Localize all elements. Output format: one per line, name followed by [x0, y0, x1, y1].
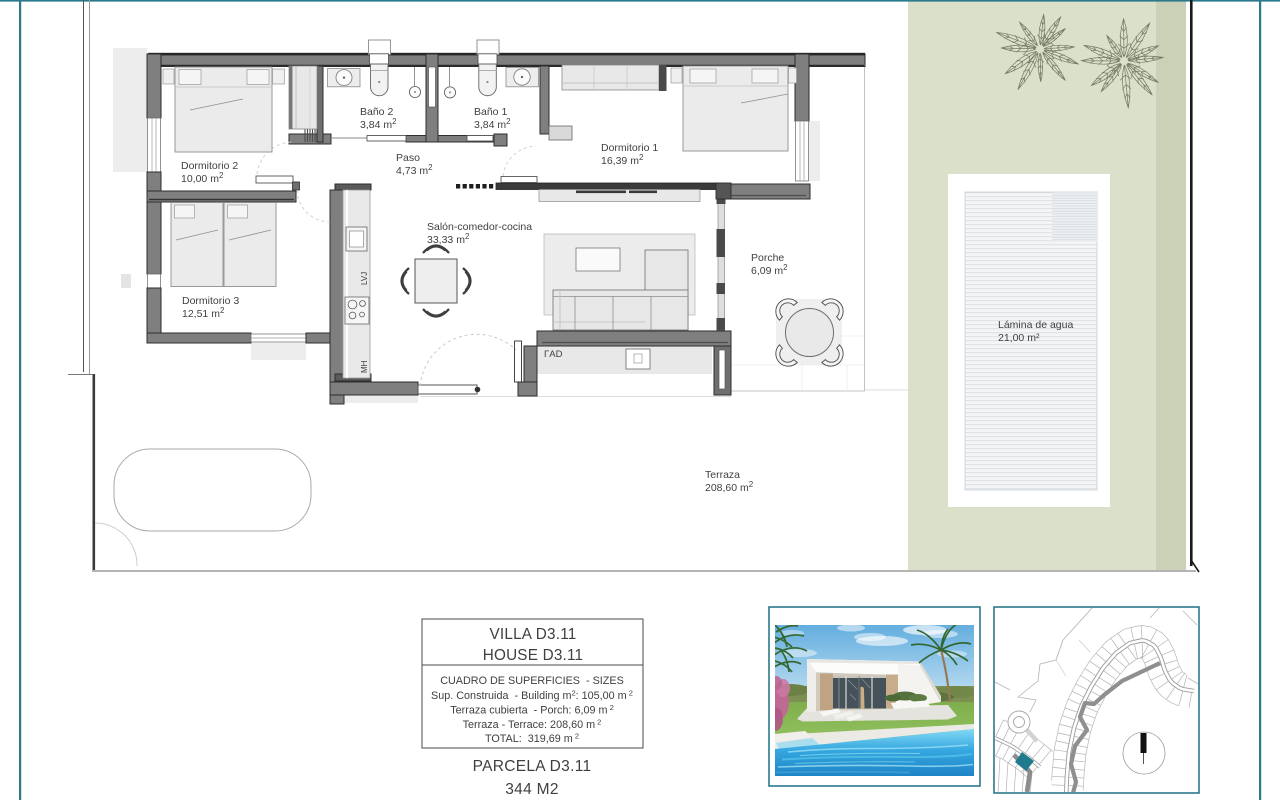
svg-text:VILLA D3.11: VILLA D3.11	[490, 626, 577, 643]
svg-text:MH: MH	[360, 360, 369, 373]
svg-text:3,84 m2: 3,84 m2	[360, 117, 397, 131]
svg-text:Paso: Paso	[396, 152, 420, 164]
svg-text:208,60 m2: 208,60 m2	[705, 480, 754, 494]
svg-text:HOUSE D3.11: HOUSE D3.11	[483, 647, 584, 664]
svg-text:Porche: Porche	[751, 252, 784, 264]
svg-text:Dormitorio 3: Dormitorio 3	[182, 295, 239, 307]
svg-text:Dormitorio 1: Dormitorio 1	[601, 142, 658, 154]
svg-text:Terraza cubierta - Porch: 6,0: Terraza cubierta - Porch: 6,09 m 2	[450, 703, 614, 717]
svg-text:16,39 m2: 16,39 m2	[601, 153, 644, 167]
svg-text:PARCELA D3.11: PARCELA D3.11	[473, 758, 592, 775]
svg-text:Dormitorio 2: Dormitorio 2	[181, 160, 238, 172]
svg-text:10,00 m2: 10,00 m2	[181, 171, 224, 185]
svg-text:TOTAL: 319,69 m 2: TOTAL: 319,69 m 2	[485, 732, 579, 746]
svg-text:LVJ: LVJ	[360, 272, 369, 285]
svg-text:CUADRO DE SUPERFICIES - SIZES: CUADRO DE SUPERFICIES - SIZES	[440, 675, 624, 687]
svg-text:3,84 m2: 3,84 m2	[474, 117, 511, 131]
svg-text:Lámina de agua: Lámina de agua	[998, 319, 1073, 331]
svg-text:4,73 m2: 4,73 m2	[396, 163, 433, 177]
svg-text:21,00 m²: 21,00 m²	[998, 332, 1040, 344]
svg-text:Terraza - Terrace: 208,60 m 2: Terraza - Terrace: 208,60 m 2	[463, 718, 602, 732]
svg-text:Salón-comedor-cocina: Salón-comedor-cocina	[427, 221, 532, 233]
svg-text:12,51 m2: 12,51 m2	[182, 306, 225, 320]
svg-text:344 M2: 344 M2	[505, 781, 559, 798]
svg-text:6,09 m2: 6,09 m2	[751, 263, 788, 277]
svg-text:Sup. Construida - Building m2: Sup. Construida - Building m2: 105,00 m …	[431, 689, 633, 703]
svg-text:ΓAD: ΓAD	[544, 349, 563, 360]
svg-text:Terraza: Terraza	[705, 469, 740, 481]
svg-text:Baño 1: Baño 1	[474, 106, 507, 118]
svg-text:33,33 m2: 33,33 m2	[427, 232, 470, 246]
svg-text:Baño 2: Baño 2	[360, 106, 393, 118]
